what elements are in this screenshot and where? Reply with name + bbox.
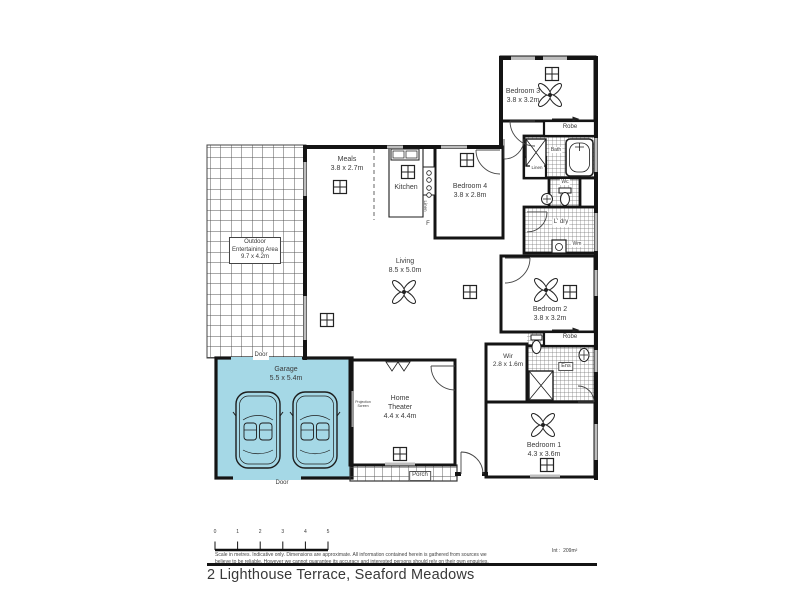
garage-door-opening-bottom: [233, 476, 301, 480]
robe-bedroom2-label: Robe: [563, 334, 577, 342]
toilet-icon: [531, 335, 542, 340]
porch-label: Porch: [409, 471, 431, 481]
window-icon: [321, 314, 334, 327]
page-title: 2 Lighthouse Terrace, Seaford Meadows: [207, 566, 475, 585]
scale-tick-2: 2: [259, 529, 262, 535]
scale-tick-3: 3: [281, 529, 284, 535]
door-arc: [476, 150, 500, 174]
garage-door-top-label: Door: [253, 352, 269, 360]
window-icon: [541, 459, 554, 472]
projection-screen: [352, 391, 355, 427]
living-label: Living8.5 x 5.0m: [389, 258, 422, 276]
robe-bedroom3-label: Robe: [563, 124, 577, 132]
floorplan-drawing: [0, 0, 800, 600]
window-icon: [402, 166, 415, 179]
window-icon: [564, 286, 577, 299]
ceiling-fan-icon: [533, 277, 560, 304]
door-arc: [431, 366, 455, 390]
wir-label: Wir2.8 x 1.6m: [493, 353, 523, 369]
linen-hall-label: Linen: [422, 200, 428, 211]
bath-label: Bath: [549, 147, 562, 153]
ceiling-fan-icon: [537, 82, 564, 109]
linen-bath-label: Linen: [530, 165, 544, 171]
projection-screen-label: ProjectionScreen: [355, 400, 371, 409]
window-icon: [461, 154, 474, 167]
double-door-icon: [386, 362, 410, 371]
scale-tick-0: 0: [214, 529, 217, 535]
scale-tick-1: 1: [236, 529, 239, 535]
meals-label: Meals3.8 x 2.7m: [331, 156, 364, 174]
garage-door-bottom-label: Door: [274, 480, 290, 488]
home-theater-label: HomeTheater4.4 x 4.4m: [384, 395, 417, 421]
window-icon: [334, 181, 347, 194]
internal-area-value: 209m²: [563, 548, 577, 554]
window-icon: [464, 286, 477, 299]
door-arc: [505, 258, 530, 283]
bedroom3-label: Bedroom 33.8 x 3.2m: [506, 88, 540, 106]
kitchen-label: Kitchen: [394, 184, 417, 193]
fridge-label: F: [426, 221, 430, 229]
wc-label: Wc: [560, 179, 570, 185]
washing-machine-label: Wm: [571, 241, 583, 247]
porch-floor: [350, 465, 457, 481]
ensuite-label: Ens: [558, 362, 573, 371]
internal-area: Int : 209m²: [552, 548, 577, 555]
floorplan-canvas: Outdoor Entertaining Area 9.7 x 4.2m Mea…: [0, 0, 800, 600]
window-icon: [394, 448, 407, 461]
bedroom2-label: Bedroom 23.8 x 3.2m: [533, 306, 567, 324]
bedroom4-label: Bedroom 43.8 x 2.8m: [453, 183, 487, 201]
bedroom1-label: Bedroom 14.3 x 3.6m: [527, 442, 561, 460]
scale-bar: [215, 542, 328, 551]
ceiling-fan-icon: [391, 279, 418, 306]
garage-label: Garage5.5 x 5.4m: [270, 366, 303, 384]
scale-tick-5: 5: [327, 529, 330, 535]
laundry-label: L' dry: [552, 219, 569, 227]
ceiling-fan-icon: [530, 412, 557, 439]
window-icon: [546, 68, 559, 81]
scale-tick-4: 4: [304, 529, 307, 535]
outdoor-area-label: Outdoor Entertaining Area 9.7 x 4.2m: [229, 237, 281, 264]
door-arc: [461, 452, 483, 474]
